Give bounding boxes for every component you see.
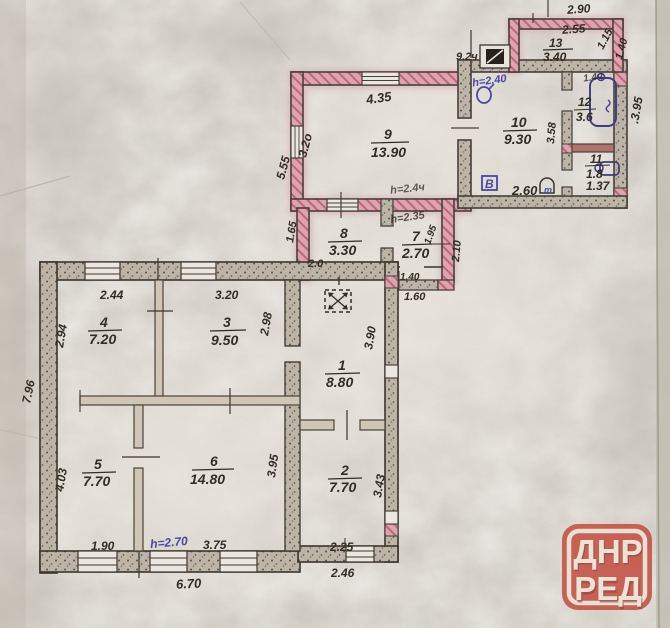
svg-text:2.70: 2.70 <box>401 245 429 261</box>
svg-text:2.46: 2.46 <box>330 566 355 580</box>
svg-text:10: 10 <box>511 114 527 130</box>
svg-text:5: 5 <box>94 456 102 472</box>
svg-text:3.58: 3.58 <box>545 121 559 144</box>
svg-text:3.20: 3.20 <box>215 288 239 302</box>
svg-text:4: 4 <box>99 314 108 330</box>
svg-text:8: 8 <box>340 225 348 241</box>
svg-text:14.80: 14.80 <box>190 471 225 487</box>
svg-text:7.70: 7.70 <box>329 479 356 495</box>
svg-text:6.70: 6.70 <box>176 575 203 591</box>
svg-text:9.30: 9.30 <box>504 131 531 147</box>
svg-text:2.10: 2.10 <box>450 239 464 263</box>
svg-text:РЕД: РЕД <box>574 570 642 607</box>
svg-text:9: 9 <box>384 126 392 142</box>
svg-text:7.70: 7.70 <box>83 473 110 489</box>
svg-text:13.90: 13.90 <box>371 144 406 160</box>
svg-text:3: 3 <box>223 314 231 330</box>
svg-text:11: 11 <box>590 152 603 166</box>
svg-text:2: 2 <box>340 462 349 478</box>
svg-text:2.55: 2.55 <box>561 21 587 37</box>
svg-text:В: В <box>485 177 494 191</box>
svg-text:13: 13 <box>549 36 563 50</box>
svg-text:1.40: 1.40 <box>400 272 420 283</box>
svg-text:2.0: 2.0 <box>307 258 324 270</box>
svg-text:3.40: 3.40 <box>543 50 567 64</box>
svg-text:2.25: 2.25 <box>329 540 354 554</box>
svg-text:1.37: 1.37 <box>586 179 611 193</box>
svg-text:ДНР: ДНР <box>573 533 642 570</box>
svg-text:2.60: 2.60 <box>511 183 538 198</box>
svg-text:3.30: 3.30 <box>329 242 356 258</box>
svg-text:3.6: 3.6 <box>576 110 593 124</box>
svg-text:3.75: 3.75 <box>203 538 227 552</box>
svg-text:1.60: 1.60 <box>404 291 426 303</box>
svg-text:2.44: 2.44 <box>99 288 124 302</box>
svg-text:6: 6 <box>210 453 218 469</box>
svg-text:7.20: 7.20 <box>89 331 116 347</box>
svg-text:9.50: 9.50 <box>211 332 238 348</box>
svg-text:12: 12 <box>578 95 592 109</box>
svg-text:9.2ч: 9.2ч <box>456 51 478 63</box>
svg-text:7: 7 <box>412 228 421 244</box>
svg-text:1.90: 1.90 <box>91 539 115 553</box>
svg-text:8.80: 8.80 <box>326 374 353 390</box>
svg-text:2.90: 2.90 <box>566 1 592 17</box>
svg-text:1: 1 <box>338 357 346 373</box>
svg-text:т: т <box>544 185 552 195</box>
